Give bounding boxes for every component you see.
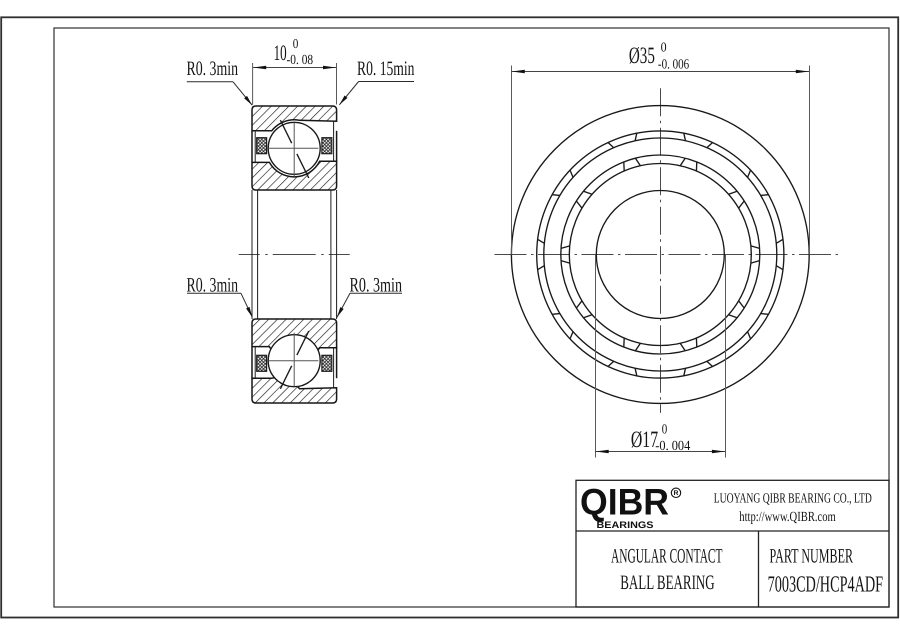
svg-text:-0. 08: -0. 08 [287,53,314,68]
svg-text:0: 0 [662,422,668,437]
svg-text:BALL BEARING: BALL BEARING [620,572,715,594]
svg-text:0: 0 [293,36,299,51]
svg-text:10: 10 [274,40,287,65]
svg-text:R: R [674,490,679,497]
svg-text:-0. 004: -0. 004 [655,439,690,454]
svg-text:R0. 3min: R0. 3min [187,274,239,296]
svg-text:PART NUMBER: PART NUMBER [770,546,854,568]
svg-text:LUOYANG QIBR BEARING CO., LTD: LUOYANG QIBR BEARING CO., LTD [714,491,872,506]
svg-text:Ø35: Ø35 [629,43,655,69]
svg-text:0: 0 [661,40,667,55]
svg-text:BEARINGS: BEARINGS [597,520,654,531]
svg-text:R0. 3min: R0. 3min [350,274,403,296]
svg-text:ANGULAR CONTACT: ANGULAR CONTACT [611,546,723,568]
svg-text:7003CD/HCP4ADF: 7003CD/HCP4ADF [768,571,884,596]
svg-text:R0. 3min: R0. 3min [187,58,239,80]
svg-text:QIBR: QIBR [580,482,669,523]
svg-text:http://www.QIBR.com: http://www.QIBR.com [739,510,836,525]
svg-text:Ø17: Ø17 [631,427,658,453]
svg-text:R0. 15min: R0. 15min [357,58,415,80]
svg-text:-0. 006: -0. 006 [658,58,689,73]
